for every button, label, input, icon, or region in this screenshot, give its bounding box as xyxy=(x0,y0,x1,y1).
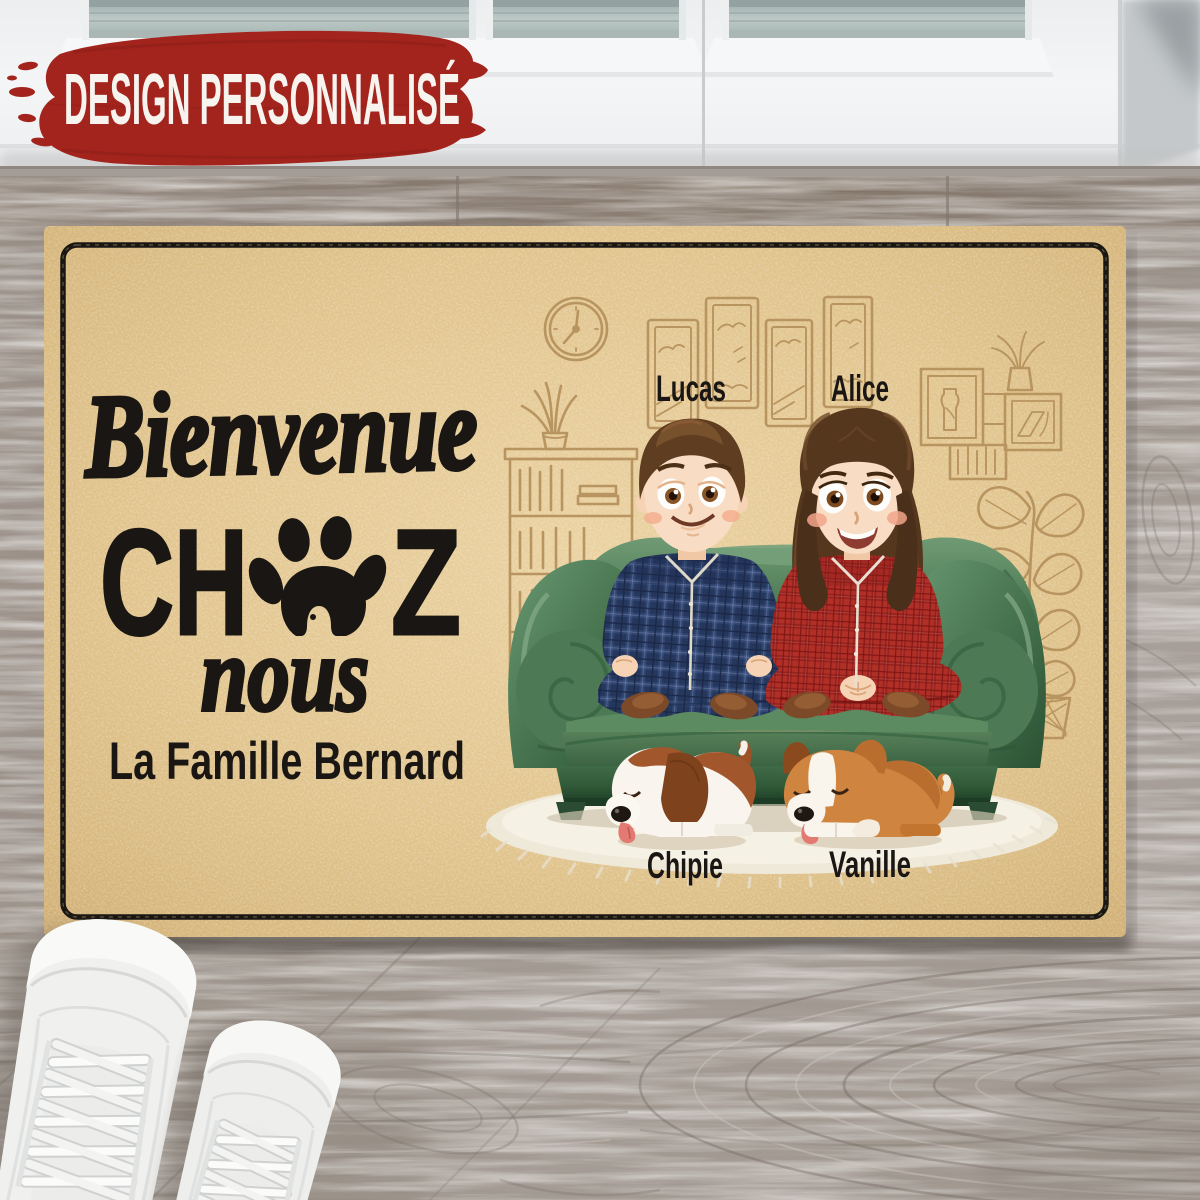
svg-text:Chipie: Chipie xyxy=(647,845,723,886)
svg-text:Lucas: Lucas xyxy=(656,368,726,409)
svg-text:Alice: Alice xyxy=(831,368,889,409)
svg-text:nous: nous xyxy=(201,616,369,733)
svg-text:Z: Z xyxy=(391,498,461,666)
svg-text:Bienvenue: Bienvenue xyxy=(82,363,478,502)
svg-text:Vanille: Vanille xyxy=(829,844,911,885)
svg-text:La Famille Bernard: La Famille Bernard xyxy=(109,732,465,791)
svg-text:DESIGN PERSONNALISÉ: DESIGN PERSONNALISÉ xyxy=(64,60,460,140)
